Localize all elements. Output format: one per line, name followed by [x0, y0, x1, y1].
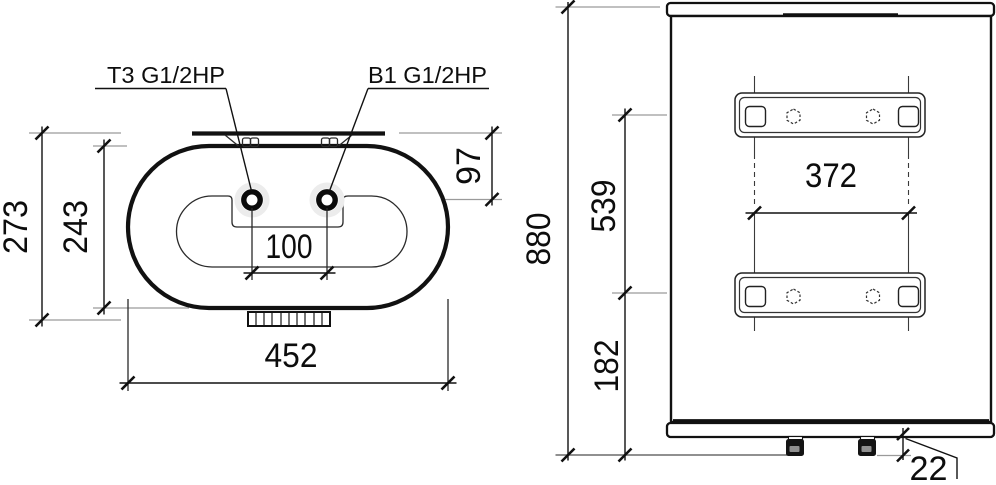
water-heater-dimension-drawing: 273 243 97	[0, 0, 996, 485]
bottom-cap	[667, 423, 994, 437]
body-panel	[671, 16, 991, 422]
bracket-slot-right	[899, 107, 919, 127]
top-view: 273 243 97	[0, 62, 502, 391]
dim-text-452: 452	[265, 337, 318, 375]
upper-mounting-bracket	[735, 93, 925, 137]
dim-text-100: 100	[266, 228, 313, 266]
dim-text-182: 182	[588, 340, 626, 393]
lower-mounting-bracket	[735, 273, 925, 317]
pipe-stub-highlight	[790, 446, 800, 452]
dim-text-372: 372	[805, 157, 857, 195]
dim-text-97: 97	[450, 147, 488, 185]
dim-bracket-spacing-539-182: 539 182	[585, 109, 667, 462]
label-t3: T3 G1/2HP	[107, 62, 225, 88]
dim-text-273: 273	[0, 200, 35, 254]
rear-view: 880 539 182	[520, 1, 994, 485]
pipe-stub-highlight	[862, 446, 872, 452]
port-ring	[244, 192, 260, 208]
dim-text-243: 243	[57, 200, 95, 254]
dim-text-22: 22	[910, 450, 948, 485]
port-ring	[319, 192, 335, 208]
bracket-slot-right	[899, 287, 919, 307]
bracket-slot-left	[746, 107, 766, 127]
bottom-connector	[248, 312, 330, 326]
heater-body	[667, 3, 994, 456]
dim-text-880: 880	[520, 213, 558, 266]
technical-drawing-svg: 273 243 97	[0, 0, 996, 485]
bracket-slot-left	[746, 287, 766, 307]
dim-text-539: 539	[585, 180, 623, 233]
label-b1: B1 G1/2HP	[368, 62, 487, 88]
